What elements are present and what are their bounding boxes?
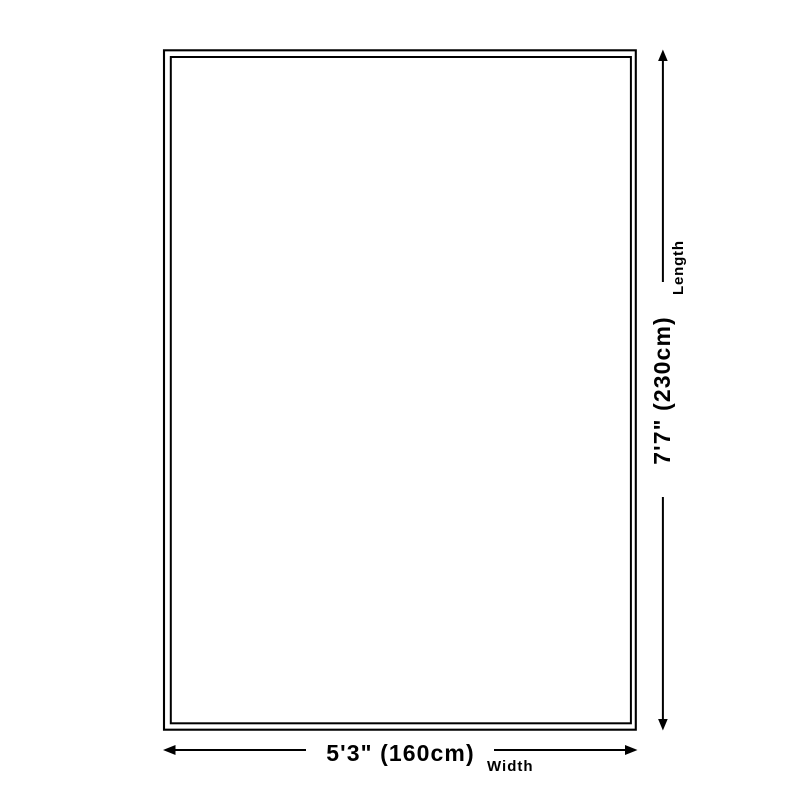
svg-text:7'7" (230cm): 7'7" (230cm) — [649, 316, 675, 464]
svg-text:5'3" (160cm): 5'3" (160cm) — [326, 740, 474, 766]
svg-text:Width: Width — [487, 758, 534, 775]
svg-text:Length: Length — [670, 240, 687, 295]
